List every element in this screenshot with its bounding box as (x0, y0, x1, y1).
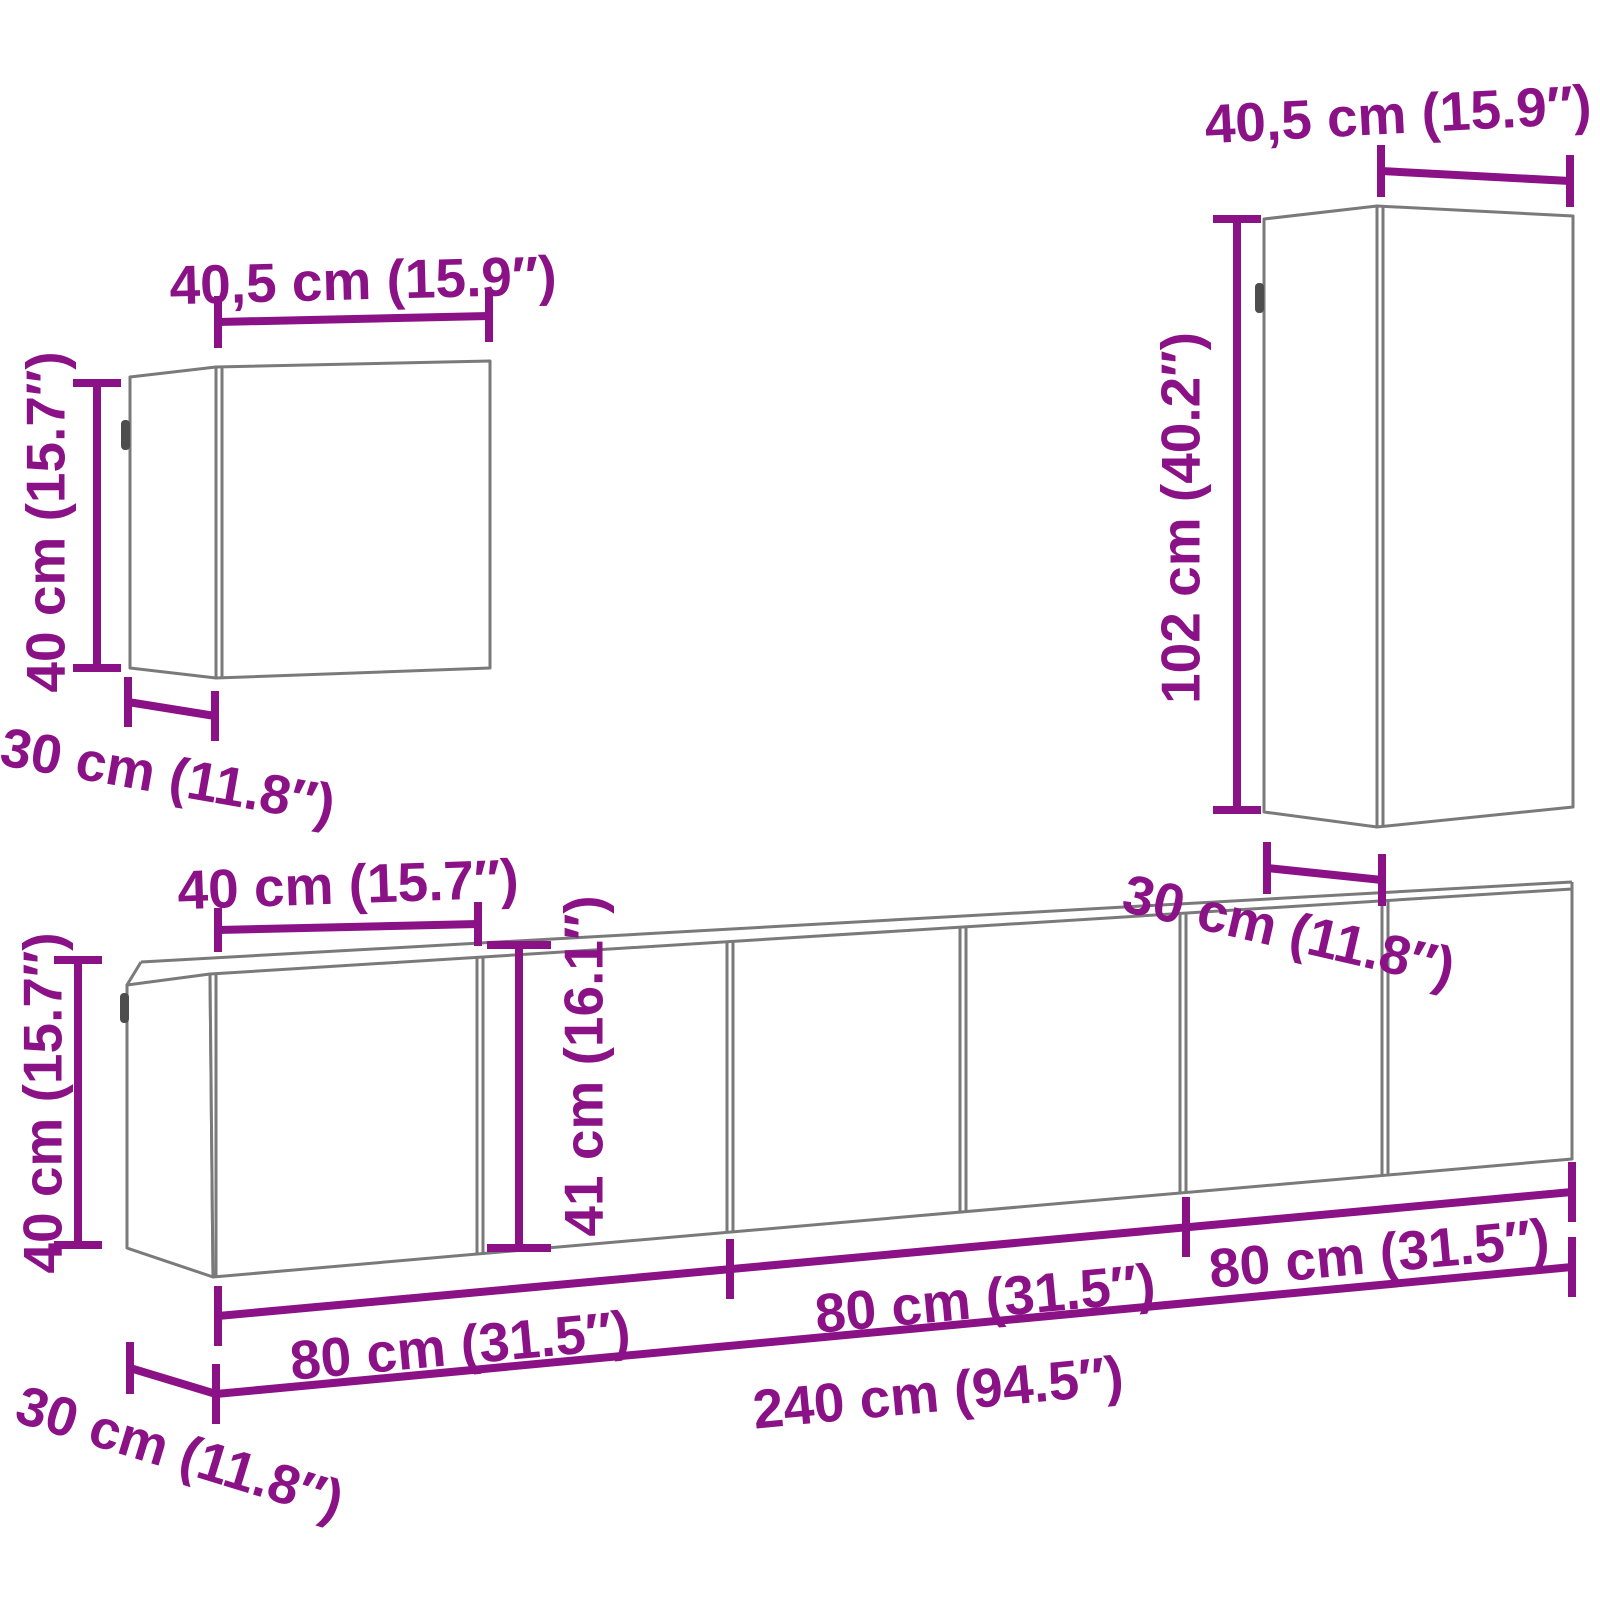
label-row-segment-2: 80 cm (31.5″) (812, 1252, 1158, 1345)
cabinet-drawings (120, 206, 1573, 1277)
small-wall-cabinet (121, 361, 490, 678)
label-small-width: 40,5 cm (15.9″) (169, 244, 558, 316)
tall-cabinet-handle (1255, 283, 1264, 313)
small-cabinet-front-panel (216, 361, 490, 678)
row-handle (120, 993, 129, 1023)
label-small-depth: 30 cm (11.8″) (0, 715, 340, 835)
dim-tall-height (1213, 219, 1261, 810)
tall-cabinet-side-panel (1264, 206, 1377, 827)
dim-small-depth (128, 677, 215, 741)
dim-tall-width (1381, 145, 1570, 207)
tall-cabinet-front-panel (1377, 206, 1573, 827)
row-top-left-depth-edge (127, 962, 141, 985)
label-row-depth: 30 cm (11.8″) (9, 1373, 351, 1531)
label-row-unit-height: 41 cm (16.1″) (552, 895, 614, 1236)
dimension-diagram: 40,5 cm (15.9″) 40 cm (15.7″) 30 cm (11.… (0, 0, 1600, 1600)
label-row-segment-1: 80 cm (31.5″) (287, 1299, 633, 1392)
tall-wall-cabinet (1255, 206, 1573, 827)
label-row-total-width: 240 cm (94.5″) (750, 1344, 1126, 1441)
small-cabinet-handle (121, 420, 130, 450)
small-cabinet-side-panel (130, 367, 216, 678)
row-side-panel (127, 974, 213, 1277)
dim-small-height (73, 383, 121, 668)
label-tall-height: 102 cm (40.2″) (1149, 332, 1211, 704)
label-tall-width: 40,5 cm (15.9″) (1203, 73, 1593, 155)
label-small-height: 40 cm (15.7″) (14, 351, 76, 692)
label-row-door-width: 40 cm (15.7″) (176, 847, 519, 921)
label-row-height: 40 cm (15.7″) (11, 932, 73, 1273)
